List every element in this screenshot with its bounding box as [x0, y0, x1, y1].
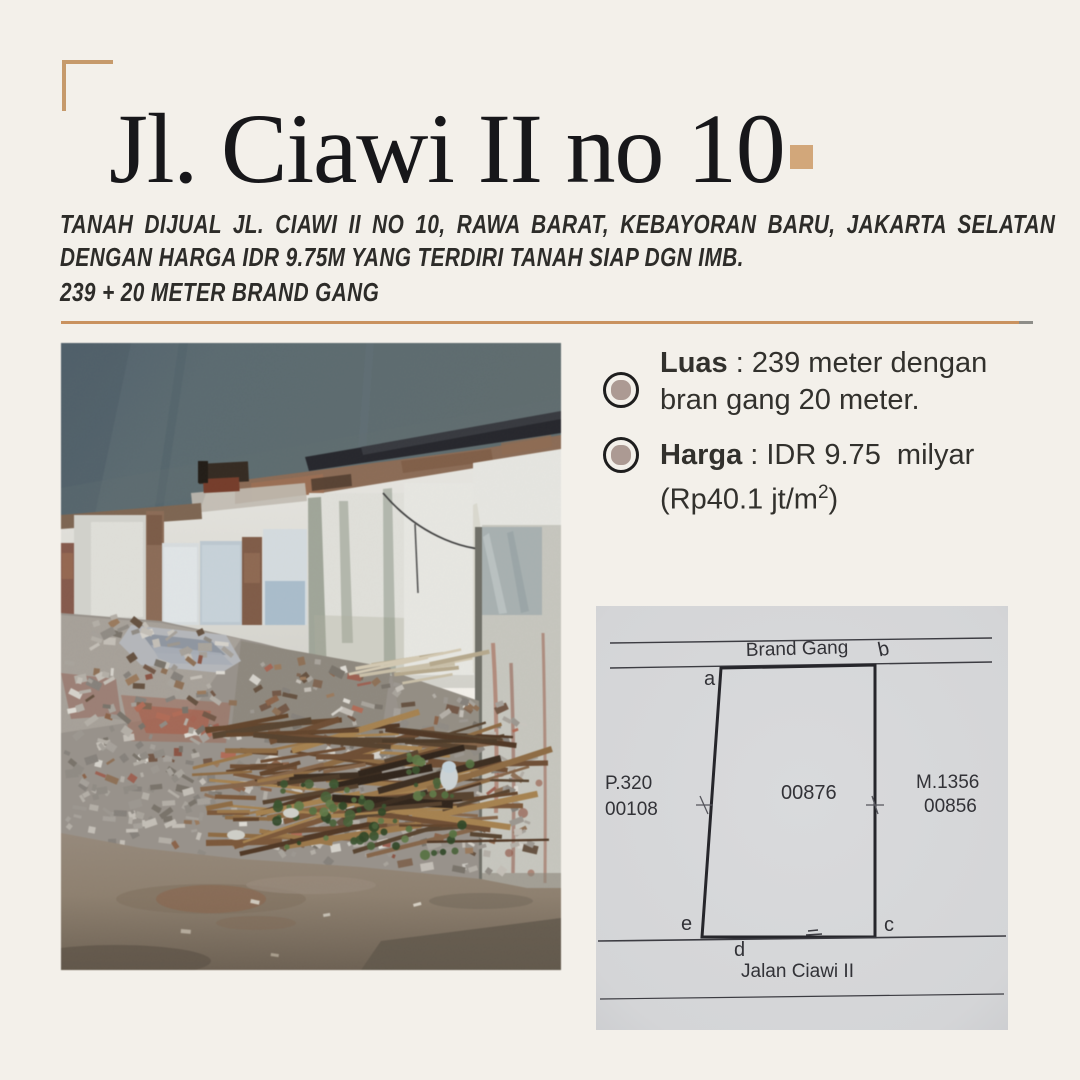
- svg-text:e: e: [681, 913, 692, 935]
- svg-text:P.320: P.320: [605, 773, 652, 794]
- svg-text:a: a: [704, 668, 716, 690]
- svg-text:00876: 00876: [781, 782, 837, 804]
- svg-text:d: d: [734, 939, 745, 961]
- svg-text:c: c: [884, 914, 894, 936]
- svg-text:00856: 00856: [924, 796, 977, 817]
- svg-text:Brand Gang: Brand Gang: [746, 637, 849, 661]
- svg-text:Jalan Ciawi II: Jalan Ciawi II: [741, 961, 854, 982]
- svg-text:00108: 00108: [605, 799, 658, 820]
- svg-text:M.1356: M.1356: [916, 772, 979, 793]
